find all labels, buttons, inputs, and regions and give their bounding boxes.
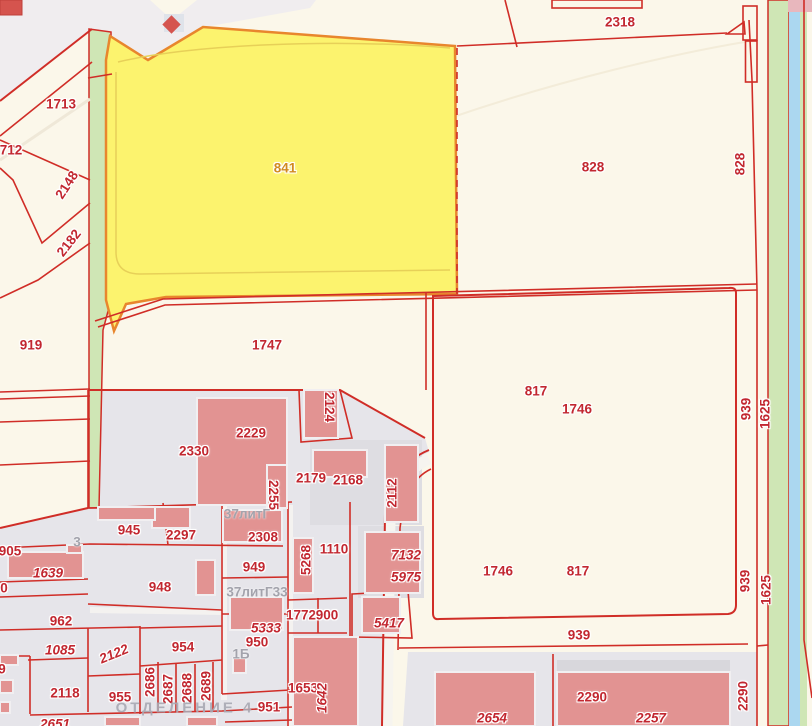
water-strip: [789, 0, 800, 726]
building-footprint[interactable]: [267, 465, 287, 508]
building-footprint[interactable]: [435, 672, 535, 726]
building-footprint[interactable]: [365, 532, 420, 593]
building-footprint[interactable]: [0, 680, 13, 693]
building-footprint[interactable]: [313, 450, 367, 477]
parcel-841-highlighted[interactable]: [106, 27, 457, 331]
pink-area-top-right: [788, 0, 812, 12]
green-strip-right: [768, 0, 789, 726]
building-footprint[interactable]: [67, 545, 82, 553]
cadastral-map-viewport[interactable]: 2318171371221482182919841828828174781717…: [0, 0, 812, 726]
building-footprint[interactable]: [105, 717, 140, 726]
building-footprint[interactable]: [233, 658, 246, 673]
building-footprint[interactable]: [0, 655, 18, 665]
map-canvas: [0, 0, 812, 726]
building-footprint[interactable]: [304, 390, 338, 438]
building-footprint[interactable]: [293, 637, 358, 726]
building-footprint[interactable]: [152, 507, 190, 528]
building-footprint[interactable]: [8, 552, 83, 578]
building-footprint[interactable]: [0, 702, 10, 713]
building-footprint[interactable]: [196, 560, 215, 595]
building-footprint[interactable]: [362, 597, 400, 633]
building-footprint[interactable]: [187, 717, 217, 726]
building-footprint[interactable]: [0, 0, 22, 15]
building-footprint[interactable]: [385, 445, 418, 522]
building-footprint[interactable]: [223, 510, 282, 542]
building-footprint[interactable]: [98, 507, 155, 520]
building-footprint[interactable]: [293, 538, 313, 593]
building-footprint[interactable]: [557, 672, 730, 726]
building-footprint[interactable]: [230, 597, 283, 630]
